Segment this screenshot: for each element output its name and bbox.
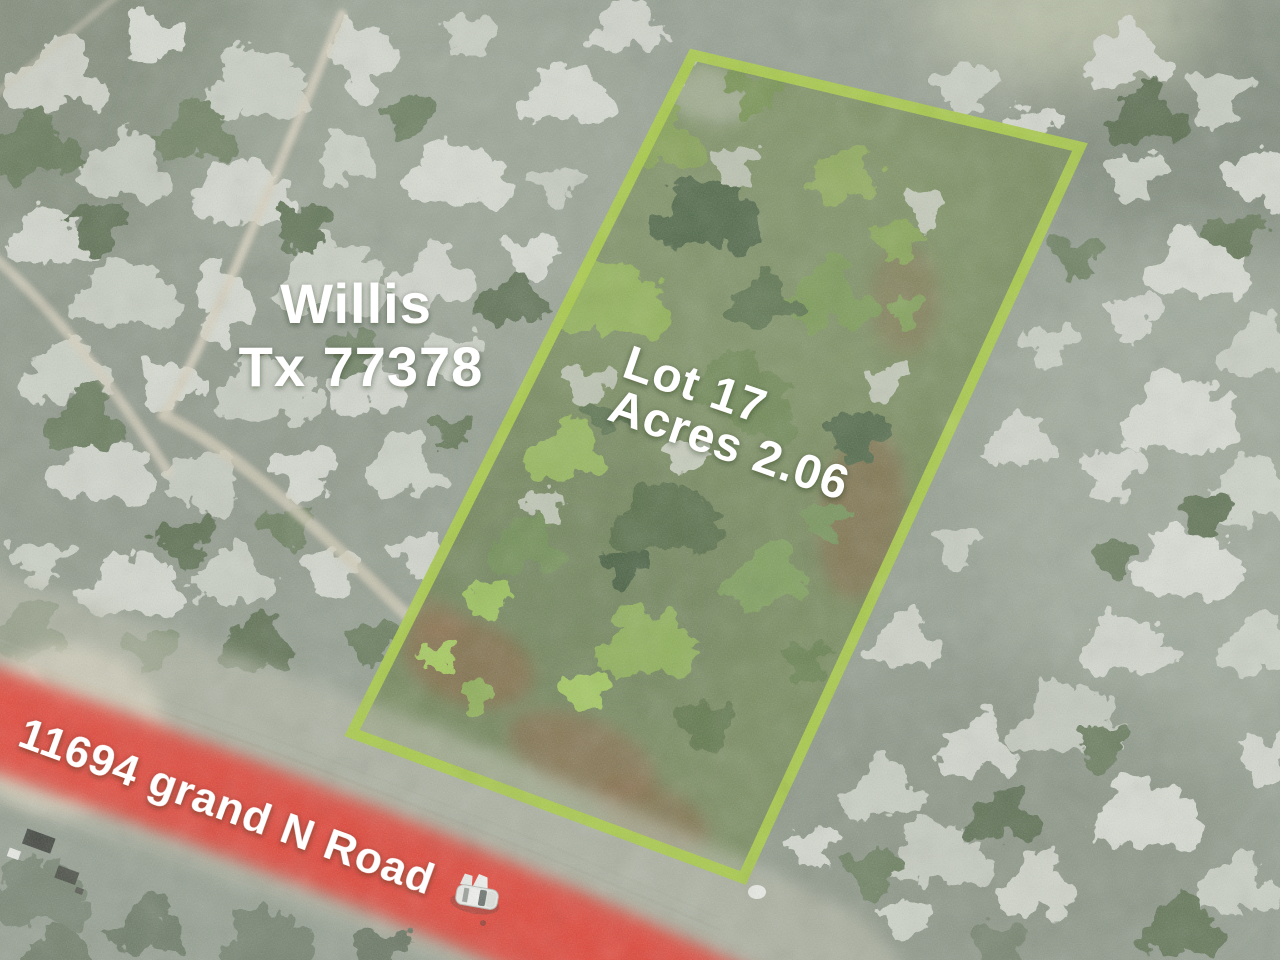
aerial-scene: Willis Tx 77378 Lot 17 Acres 2.06 11694 … bbox=[0, 0, 1280, 960]
aerial-lot-photo: Willis Tx 77378 Lot 17 Acres 2.06 11694 … bbox=[0, 0, 1280, 960]
city-label-line1: Willis bbox=[280, 272, 432, 335]
city-label-line2: Tx 77378 bbox=[239, 335, 484, 398]
